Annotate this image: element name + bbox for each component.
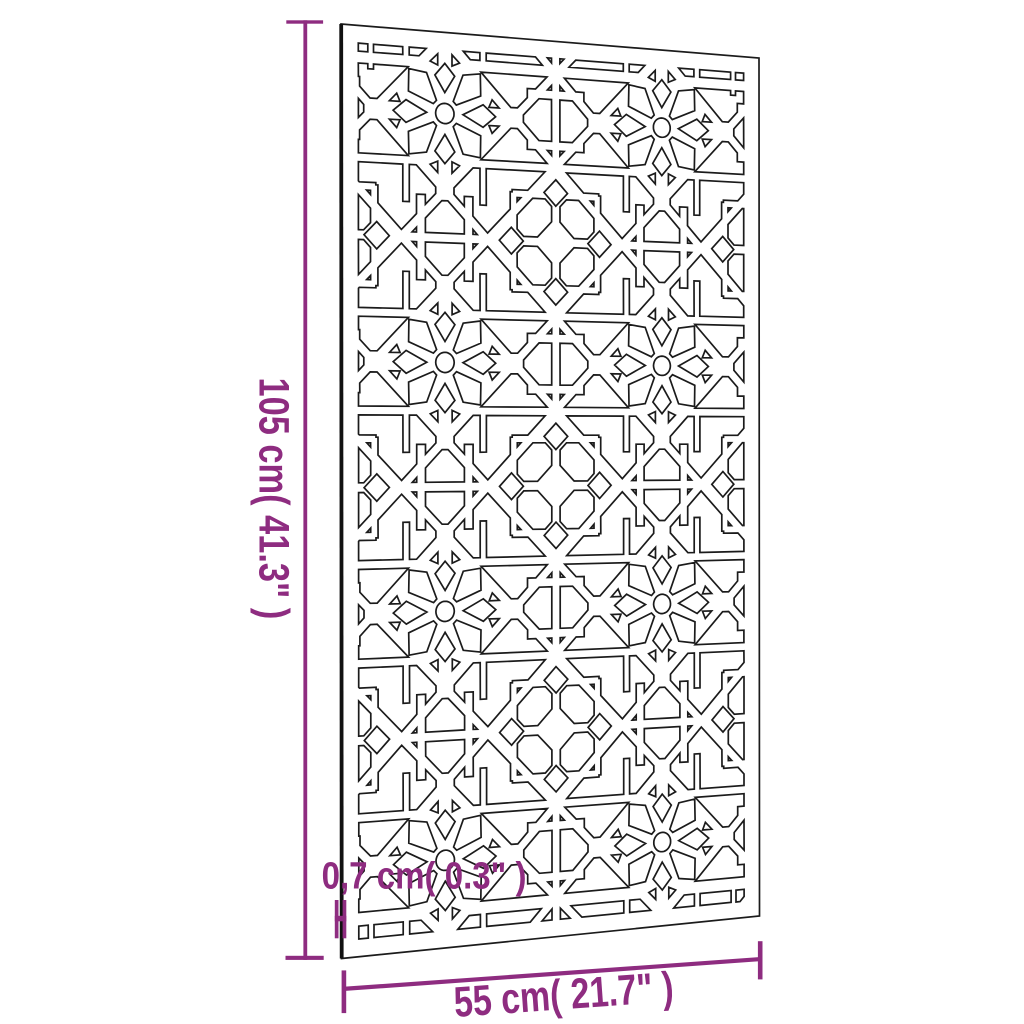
svg-text:105 cm( 41.3" ): 105 cm( 41.3" ) — [250, 378, 297, 620]
svg-text:0,7 cm( 0.3" ): 0,7 cm( 0.3" ) — [322, 854, 527, 897]
